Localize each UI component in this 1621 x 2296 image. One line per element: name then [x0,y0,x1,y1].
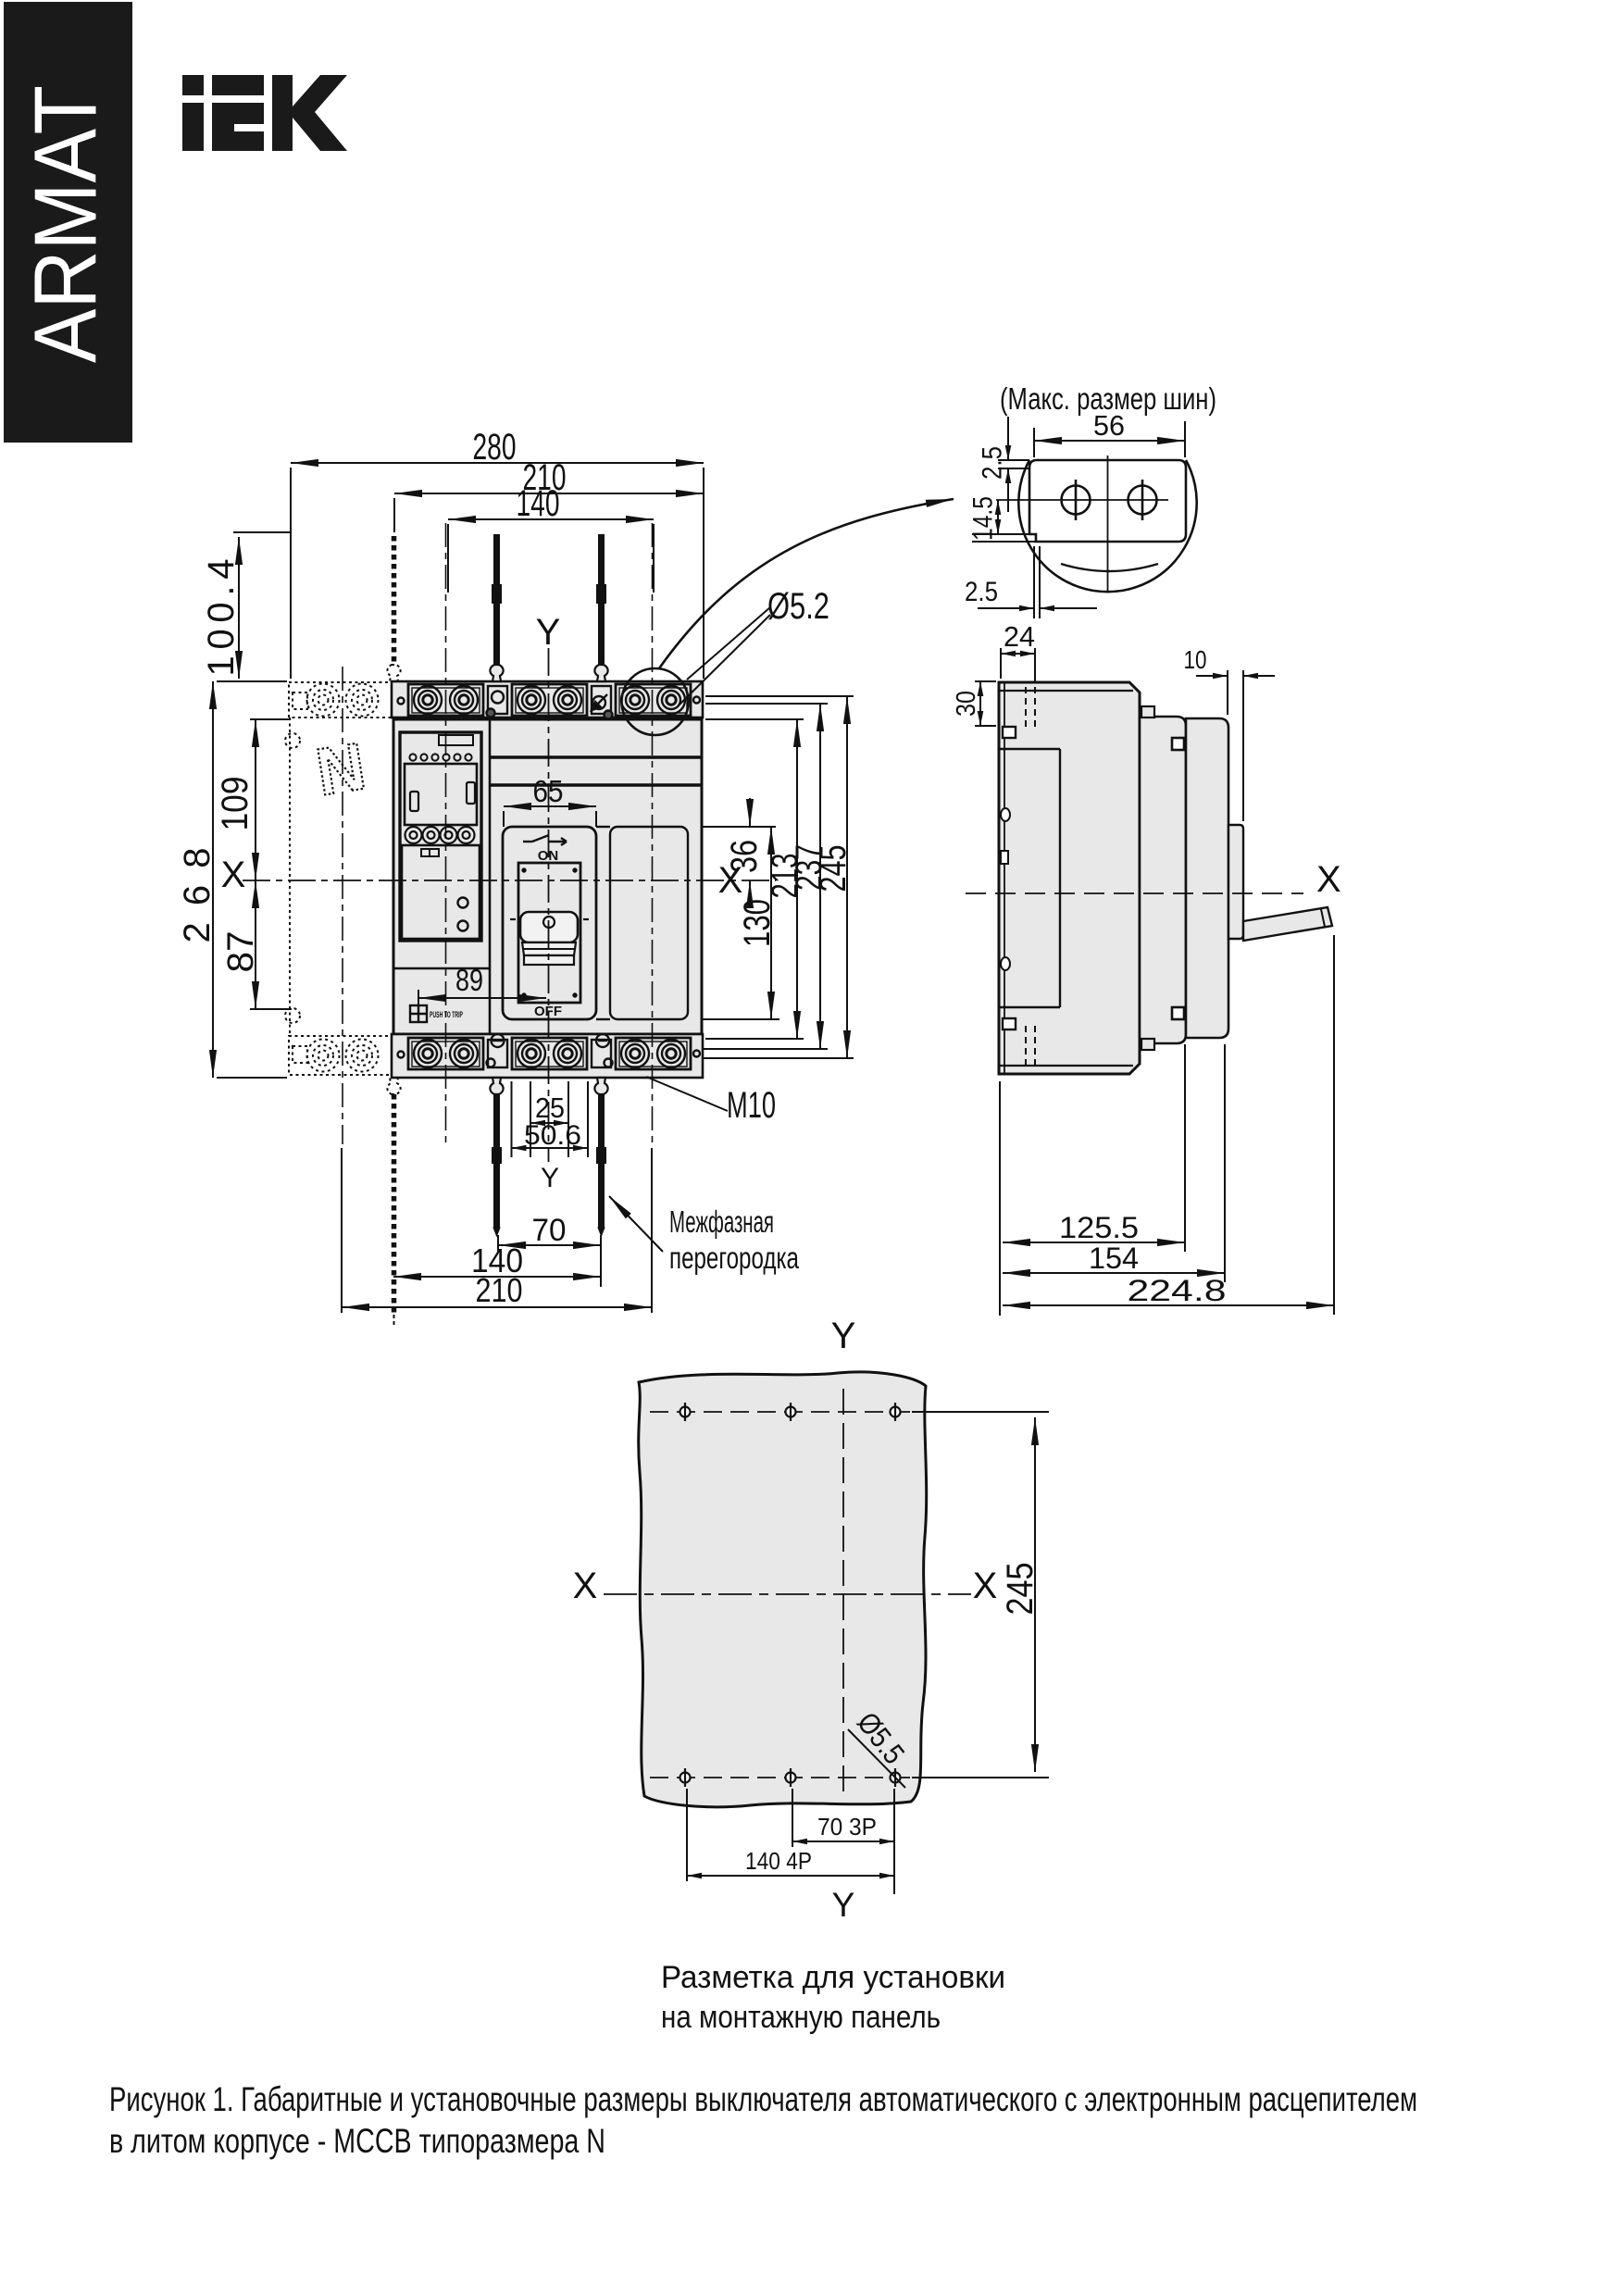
svg-text:Y: Y [541,1163,559,1193]
svg-text:на монтажную панель: на монтажную панель [661,2000,941,2035]
svg-text:50.6: 50.6 [524,1120,581,1151]
svg-text:154: 154 [1089,1242,1139,1275]
svg-text:89: 89 [455,963,483,997]
svg-text:25: 25 [535,1092,565,1124]
svg-text:Y: Y [832,1886,855,1924]
svg-text:30: 30 [952,691,981,717]
svg-text:280: 280 [473,427,517,468]
svg-text:M10: M10 [727,1085,776,1126]
svg-text:Рисунок 1. Габаритные и устано: Рисунок 1. Габаритные и установочные раз… [109,2080,1417,2118]
svg-text:24: 24 [1004,620,1035,653]
svg-text:ARMAT: ARMAT [17,85,116,363]
svg-text:в литом корпусе - МССВ типораз: в литом корпусе - МССВ типоразмера N [109,2122,605,2160]
svg-text:140 4P: 140 4P [745,1847,812,1875]
svg-text:109: 109 [215,777,256,831]
svg-text:224.8: 224.8 [1128,1274,1227,1307]
svg-text:X: X [573,1566,598,1606]
svg-text:Y: Y [536,612,561,653]
svg-text:X: X [1316,859,1341,900]
svg-text:Межфазная: Межфазная [669,1204,774,1239]
svg-text:210: 210 [476,1271,523,1309]
svg-text:140: 140 [517,483,560,524]
svg-text:10: 10 [1184,645,1207,674]
svg-text:Разметка для установки: Разметка для установки [661,1960,1005,1995]
svg-text:130: 130 [737,899,778,947]
svg-text:X: X [221,855,246,895]
svg-text:70 3P: 70 3P [817,1813,877,1841]
svg-text:70: 70 [532,1213,567,1248]
svg-text:Ø5.2: Ø5.2 [767,586,829,627]
svg-text:268: 268 [177,848,218,943]
svg-text:2.5: 2.5 [965,577,998,607]
svg-text:Y: Y [831,1316,856,1356]
svg-text:56: 56 [1093,409,1125,442]
svg-text:245: 245 [1000,1563,1041,1616]
svg-text:100.4: 100.4 [201,559,242,677]
svg-text:87: 87 [220,931,261,973]
svg-text:36: 36 [724,840,765,873]
svg-text:перегородка: перегородка [669,1241,799,1275]
svg-text:65: 65 [533,774,564,808]
svg-text:125.5: 125.5 [1059,1211,1139,1244]
svg-text:2.5: 2.5 [978,446,1008,480]
svg-text:245: 245 [813,845,854,892]
svg-text:X: X [973,1566,998,1606]
